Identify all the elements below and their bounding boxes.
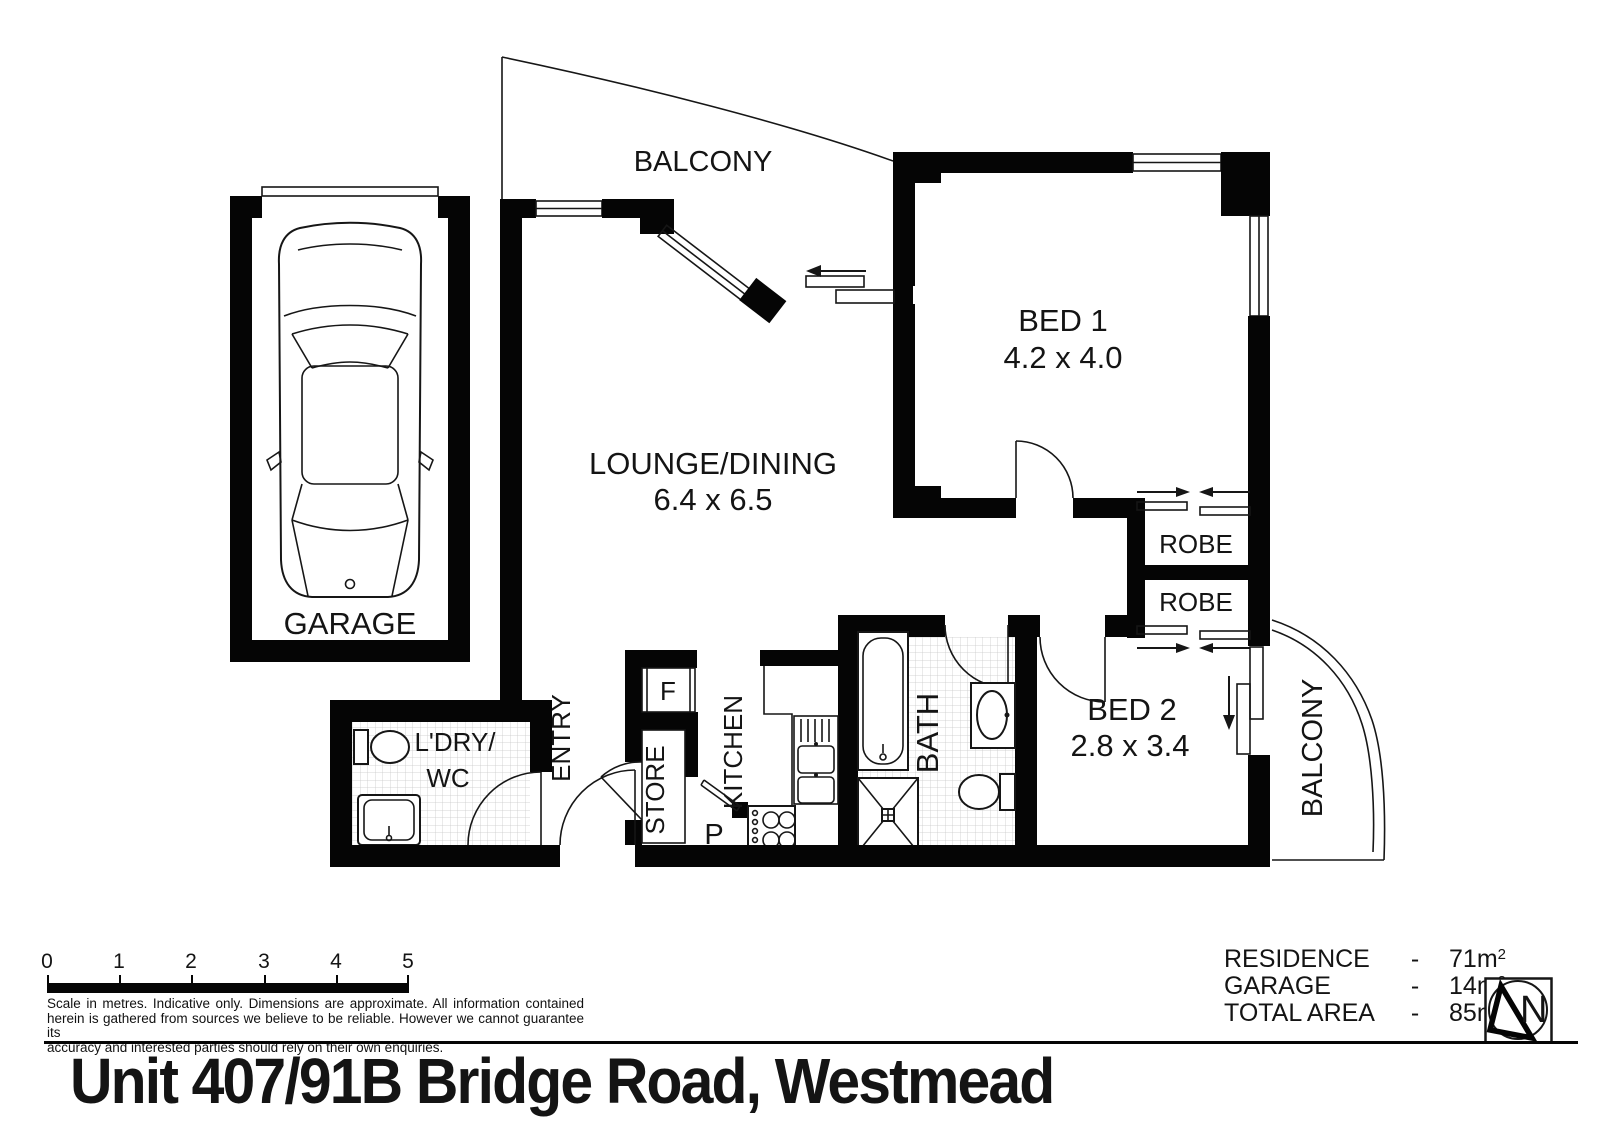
room-label-kitchen: KITCHEN	[718, 695, 748, 809]
scale-tick-label: 5	[398, 950, 418, 974]
toilet-laundry	[354, 730, 409, 764]
legend-separator: -	[1386, 946, 1444, 973]
window-bed1-top	[1133, 154, 1221, 171]
disclaimer-line: Scale in metres. Indicative only. Dimens…	[47, 997, 584, 1012]
car-top-view	[267, 223, 433, 597]
floor-plan: GARAGE BALCONY LOUNGE/DINING 6.4 x 6.5	[0, 0, 1600, 940]
room-label-laundry-1: L'DRY/	[414, 727, 496, 757]
north-letter: N	[1520, 989, 1547, 1031]
room-label-store: STORE	[640, 745, 670, 834]
legend-row-residence: RESIDENCE - 71m2	[1224, 946, 1506, 973]
scale-tick-label: 2	[181, 950, 201, 974]
room-label-balcony-top: BALCONY	[634, 146, 773, 178]
window-diagonal	[658, 225, 756, 305]
room-label-bath: BATH	[910, 693, 945, 773]
scale-tick-label: 0	[37, 950, 57, 974]
robe1-sliding-door	[1137, 487, 1250, 515]
toilet-bath	[959, 774, 1015, 810]
room-label-robe1: ROBE	[1159, 529, 1233, 559]
sliding-door-bed2-balcony	[1223, 647, 1263, 754]
legend-label: RESIDENCE	[1224, 946, 1386, 973]
room-label-fridge: F	[660, 676, 676, 706]
room-dims-bed2: 2.8 x 3.4	[1071, 728, 1190, 763]
legend-label: GARAGE	[1224, 973, 1386, 1000]
room-label-robe2: ROBE	[1159, 587, 1233, 617]
room-label-garage: GARAGE	[284, 606, 417, 641]
page-title: Unit 407/91B Bridge Road, Westmead	[70, 1044, 1053, 1118]
legend-separator: -	[1386, 1000, 1444, 1027]
bathtub	[858, 632, 908, 770]
legend-row-total: TOTAL AREA - 85m2	[1224, 1000, 1506, 1027]
room-dims-bed1: 4.2 x 4.0	[1004, 340, 1123, 375]
legend-value: 71m	[1449, 945, 1498, 973]
kitchen-counter	[764, 666, 838, 806]
room-label-lounge: LOUNGE/DINING	[589, 446, 837, 481]
garage-door	[262, 187, 438, 196]
south-wall	[330, 845, 1270, 867]
window-bed1-right	[1250, 216, 1268, 316]
legend-value-sup: 2	[1498, 946, 1506, 963]
room-dims-lounge: 6.4 x 6.5	[654, 482, 773, 517]
north-arrow: N	[1484, 977, 1554, 1044]
scale-bar: 0 1 2 3 4 5	[47, 950, 409, 994]
area-legend: RESIDENCE - 71m2 GARAGE - 14m2 TOTAL ARE…	[1224, 946, 1506, 1027]
window-lounge-top	[536, 201, 602, 216]
room-label-bed1: BED 1	[1018, 303, 1108, 338]
room-label-bed2: BED 2	[1087, 692, 1177, 727]
scale-bar-rule	[47, 983, 409, 993]
sliding-door-lounge-balcony	[806, 265, 894, 303]
legend-label: TOTAL AREA	[1224, 1000, 1386, 1027]
shower	[858, 778, 918, 852]
scale-tick-label: 3	[254, 950, 274, 974]
legend-separator: -	[1386, 973, 1444, 1000]
robe-walls	[1127, 498, 1248, 638]
laundry-tub	[358, 795, 420, 845]
disclaimer-line: herein is gathered from sources we belie…	[47, 1012, 584, 1041]
vanity-basin	[971, 683, 1015, 748]
robe2-sliding-door	[1137, 626, 1250, 653]
scale-tick-label: 4	[326, 950, 346, 974]
scale-tick-label: 1	[109, 950, 129, 974]
kitchen-walls	[732, 650, 843, 818]
floorplan-page: GARAGE BALCONY LOUNGE/DINING 6.4 x 6.5	[0, 0, 1600, 1131]
garage-walls	[230, 187, 470, 662]
legend-row-garage: GARAGE - 14m2	[1224, 973, 1506, 1000]
room-label-laundry-2: WC	[426, 763, 469, 793]
room-label-balcony-right: BALCONY	[1297, 679, 1329, 818]
door-bed1	[1016, 441, 1073, 498]
